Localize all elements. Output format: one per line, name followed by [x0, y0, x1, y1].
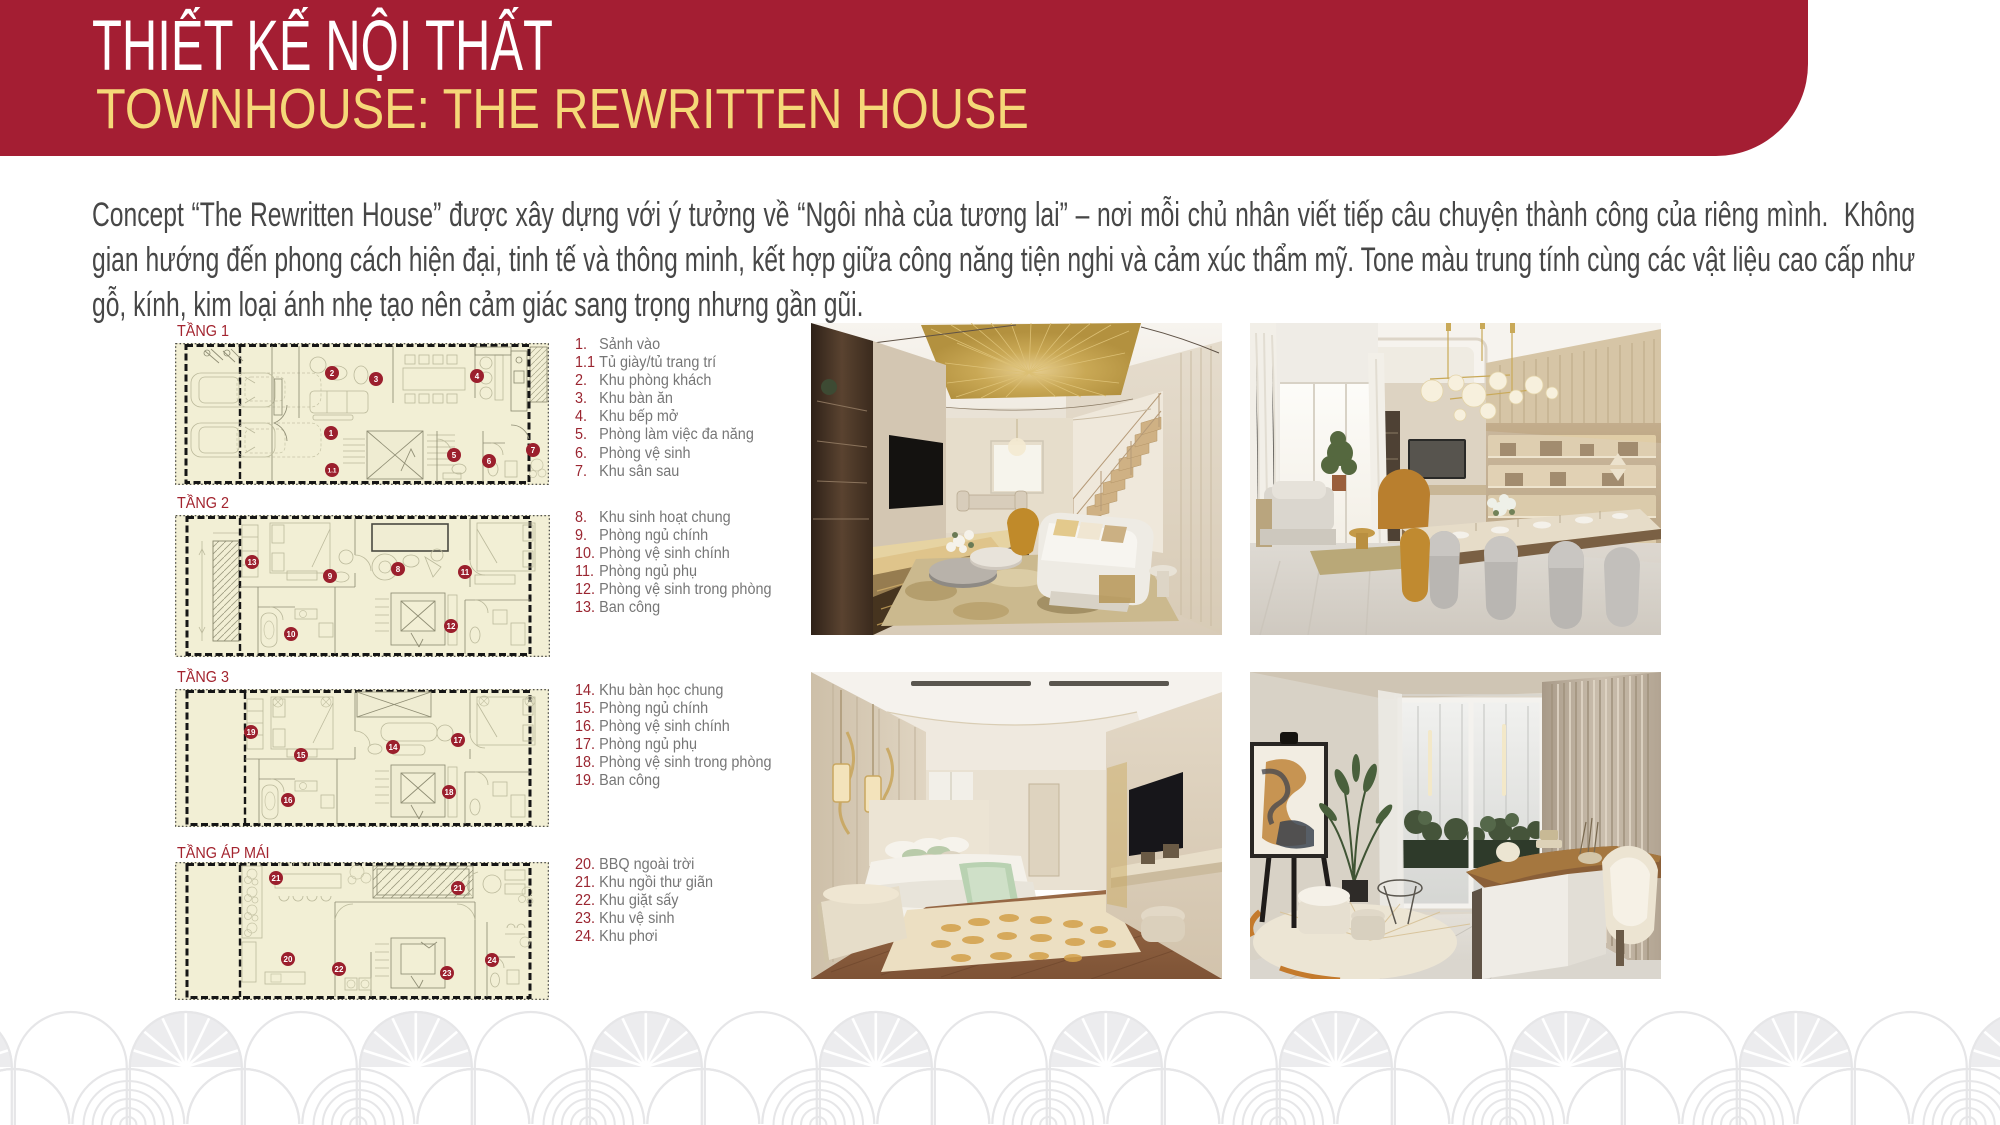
svg-text:14: 14 — [389, 743, 398, 752]
svg-text:21: 21 — [272, 874, 281, 883]
svg-text:16: 16 — [284, 796, 293, 805]
svg-text:13: 13 — [248, 558, 257, 567]
svg-text:24: 24 — [488, 956, 497, 965]
svg-text:23: 23 — [443, 969, 452, 978]
svg-text:18: 18 — [445, 788, 454, 797]
svg-text:21: 21 — [454, 884, 463, 893]
svg-text:6: 6 — [487, 457, 492, 466]
svg-text:11: 11 — [461, 568, 470, 577]
svg-text:22: 22 — [335, 965, 344, 974]
svg-text:10: 10 — [287, 630, 296, 639]
svg-text:19: 19 — [247, 728, 256, 737]
svg-text:5: 5 — [452, 451, 457, 460]
svg-text:4: 4 — [475, 372, 480, 381]
svg-text:17: 17 — [454, 736, 463, 745]
svg-text:3: 3 — [374, 375, 379, 384]
svg-text:1.1: 1.1 — [327, 468, 336, 475]
svg-text:9: 9 — [328, 572, 333, 581]
svg-text:1: 1 — [329, 429, 334, 438]
svg-text:12: 12 — [447, 622, 456, 631]
svg-text:15: 15 — [297, 751, 306, 760]
svg-text:2: 2 — [330, 369, 335, 378]
svg-text:20: 20 — [284, 955, 293, 964]
svg-text:7: 7 — [531, 446, 536, 455]
svg-text:8: 8 — [396, 565, 401, 574]
